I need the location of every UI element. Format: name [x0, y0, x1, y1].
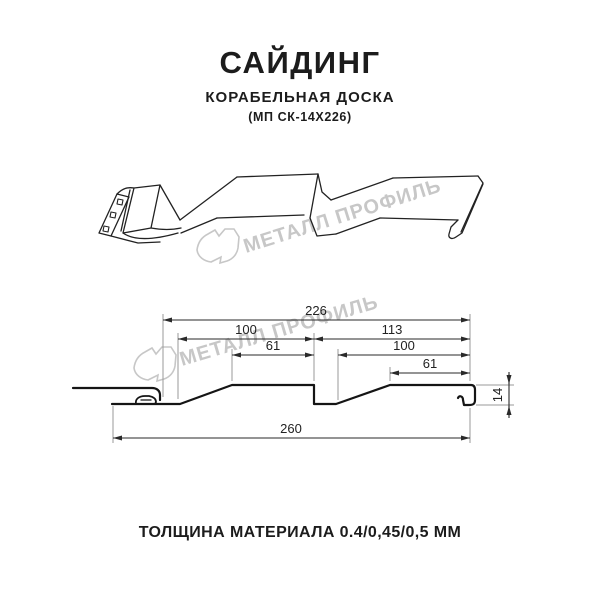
dim-right-board-flat: 61: [423, 356, 437, 371]
dim-right-board-width: 100: [393, 338, 415, 353]
metal-profil-logo-watermark: [134, 347, 176, 381]
board2-near-edge: [380, 218, 458, 220]
nail-slot: [103, 226, 109, 232]
slope1-far-edge: [180, 177, 237, 220]
dimension-lines: [113, 320, 509, 438]
profile-subtitle: КОРАБЕЛЬНАЯ ДОСКА: [0, 89, 600, 106]
dim-overall-width: 226: [305, 303, 327, 318]
dim-right-section-width: 113: [382, 322, 403, 337]
lock-bottom: [151, 228, 181, 230]
board1-near-edge: [217, 215, 304, 218]
page-title: САЙДИНГ: [0, 46, 600, 80]
section-outline: [112, 385, 475, 405]
header: САЙДИНГ КОРАБЕЛЬНАЯ ДОСКА (МП СК-14Х226): [0, 46, 600, 124]
profile-code: (МП СК-14Х226): [0, 110, 600, 124]
lock-fold: [117, 188, 134, 194]
watermark-text-lower: МЕТАЛЛ ПРОФИЛЬ: [177, 291, 381, 371]
j-hook: [449, 184, 483, 238]
lock-bottom: [123, 233, 178, 239]
step-cut-edge: [310, 174, 318, 218]
dim-profile-height: 14: [490, 388, 505, 402]
profile-cross-section: [73, 385, 475, 405]
watermark-brand-lower: МЕТАЛЛ ПРОФИЛЬ: [134, 291, 381, 381]
lock-bottom: [111, 236, 160, 243]
slope1-near-edge: [181, 218, 217, 233]
metal-profil-logo-watermark: [197, 229, 239, 263]
adjacent-panel-edge: [73, 388, 160, 400]
dim-left-board-width: 100: [235, 322, 257, 337]
material-thickness-note: ТОЛЩИНА МАТЕРИАЛА 0.4/0,45/0,5 ММ: [0, 524, 600, 542]
nail-slot: [117, 199, 123, 205]
extension-lines: [113, 314, 514, 443]
technical-drawing-canvas: МЕТАЛЛ ПРОФИЛЬ: [0, 145, 600, 475]
dim-total-width: 260: [280, 421, 302, 436]
board1-far-edge: [237, 174, 318, 177]
product-drawing-page: САЙДИНГ КОРАБЕЛЬНАЯ ДОСКА (МП СК-14Х226)…: [0, 0, 600, 600]
lock-back-edge: [160, 185, 180, 220]
nail-slot: [110, 212, 116, 218]
dim-left-board-flat: 61: [266, 338, 280, 353]
step-notch: [318, 174, 331, 200]
end-cut-edge: [461, 176, 483, 232]
lock-face: [123, 185, 160, 233]
